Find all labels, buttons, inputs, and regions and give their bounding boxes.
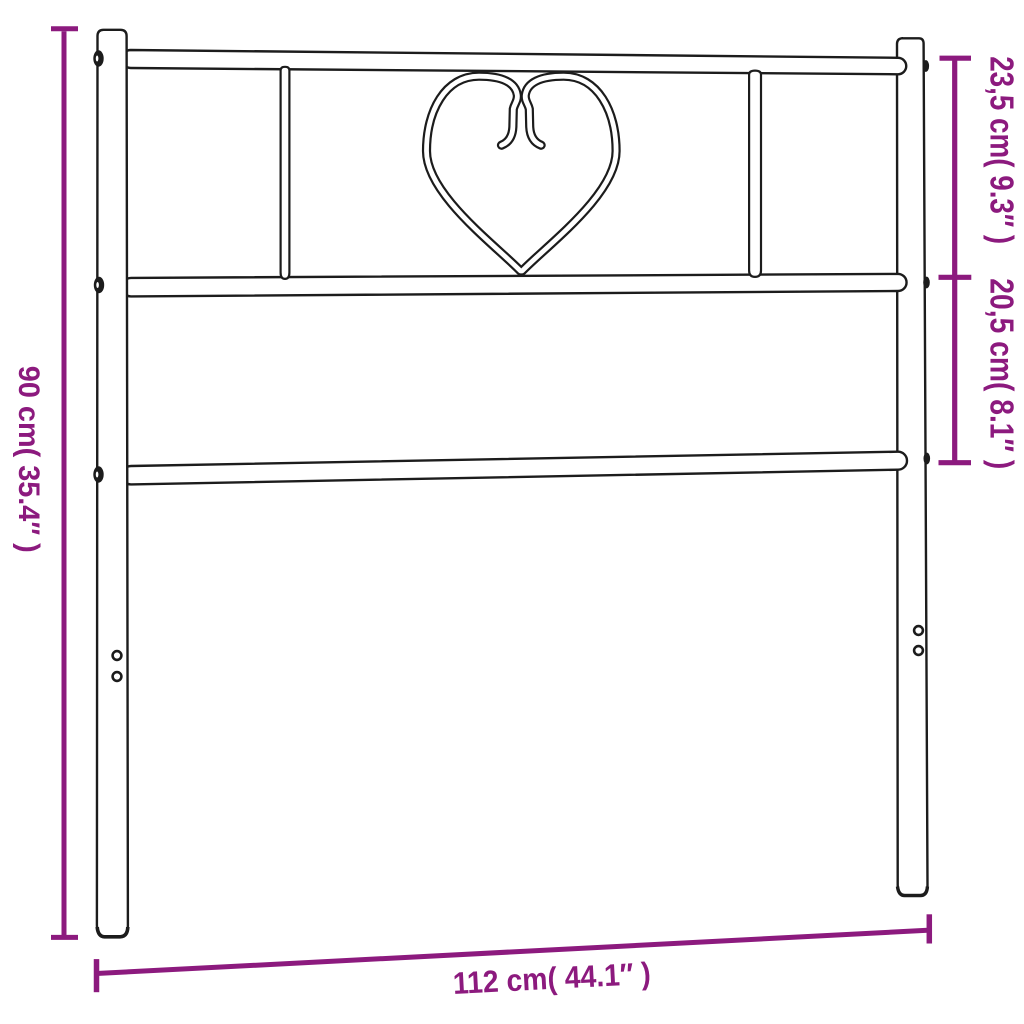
svg-text:23,5 cm( 9.3″ ): 23,5 cm( 9.3″ ) <box>984 56 1021 244</box>
svg-text:20,5 cm( 8.1″ ): 20,5 cm( 8.1″ ) <box>984 278 1021 469</box>
svg-text:90 cm( 35.4″ ): 90 cm( 35.4″ ) <box>12 366 45 553</box>
